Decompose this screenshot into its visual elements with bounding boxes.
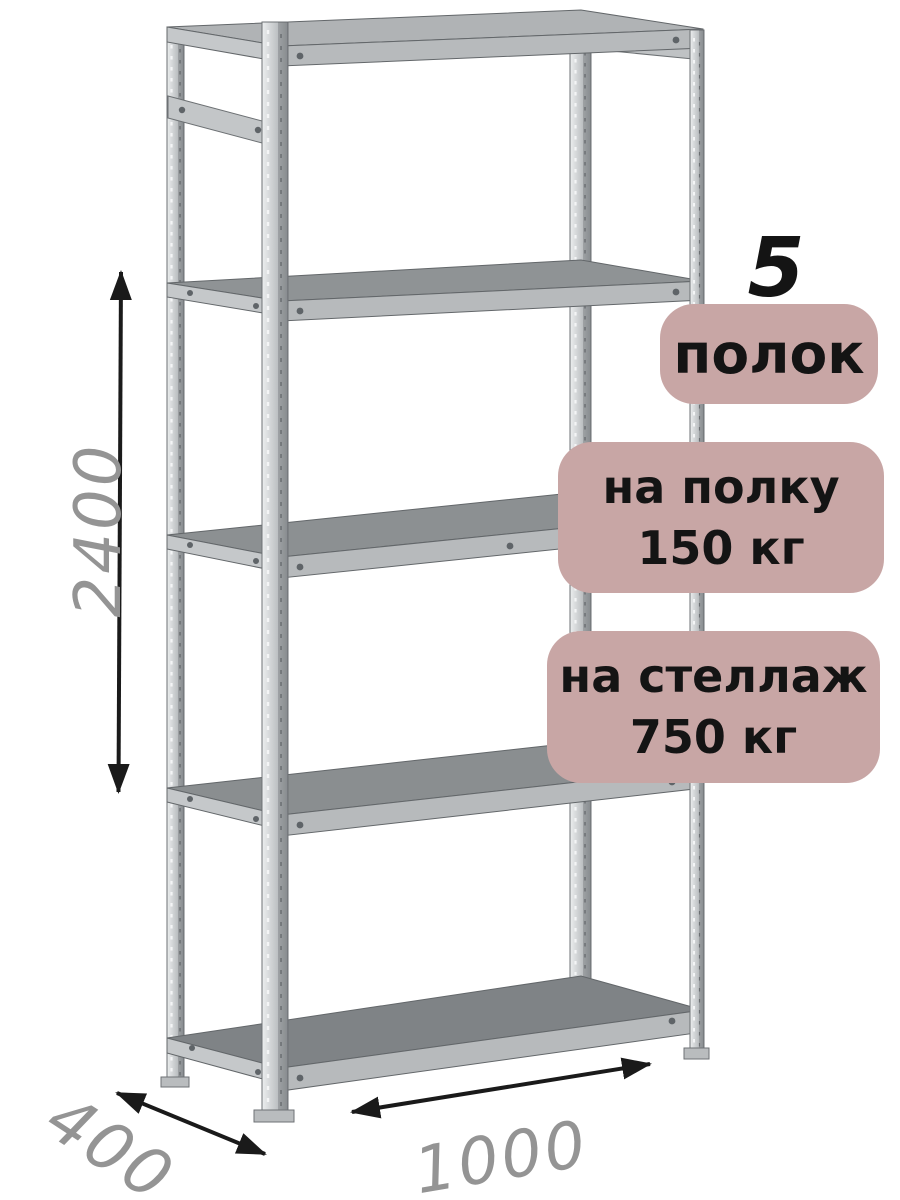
shelf-1 bbox=[167, 10, 703, 66]
shelf-count-badge: полок bbox=[660, 304, 878, 404]
foot-front-left bbox=[254, 1110, 294, 1122]
width-dimension-label: 1000 bbox=[409, 1107, 594, 1200]
per-rack-load-line2: 750 кг bbox=[630, 707, 797, 768]
upright-rear-left bbox=[161, 27, 189, 1087]
foot-front-right bbox=[684, 1048, 709, 1059]
shelf-2 bbox=[167, 260, 703, 321]
per-shelf-load-badge: на полку 150 кг bbox=[558, 442, 884, 593]
height-dimension-label: 2400 bbox=[62, 443, 136, 618]
per-shelf-load-line1: на полку bbox=[602, 457, 839, 518]
per-rack-load-line1: на стеллаж bbox=[559, 646, 867, 707]
shelf-count-label: полок bbox=[673, 322, 864, 386]
per-shelf-load-line2: 150 кг bbox=[637, 518, 804, 579]
per-rack-load-badge: на стеллаж 750 кг bbox=[547, 631, 880, 783]
depth-dimension-label: 400 bbox=[33, 1079, 188, 1200]
shelf-5 bbox=[167, 976, 703, 1091]
shelf-count-number: 5 bbox=[696, 226, 856, 316]
upright-front-left bbox=[254, 22, 294, 1122]
rack-illustration: 2400 400 1000 bbox=[0, 0, 900, 1200]
foot-rear-left bbox=[161, 1077, 189, 1087]
product-image: 2400 400 1000 5 полок на полку 150 кг на… bbox=[0, 0, 900, 1200]
